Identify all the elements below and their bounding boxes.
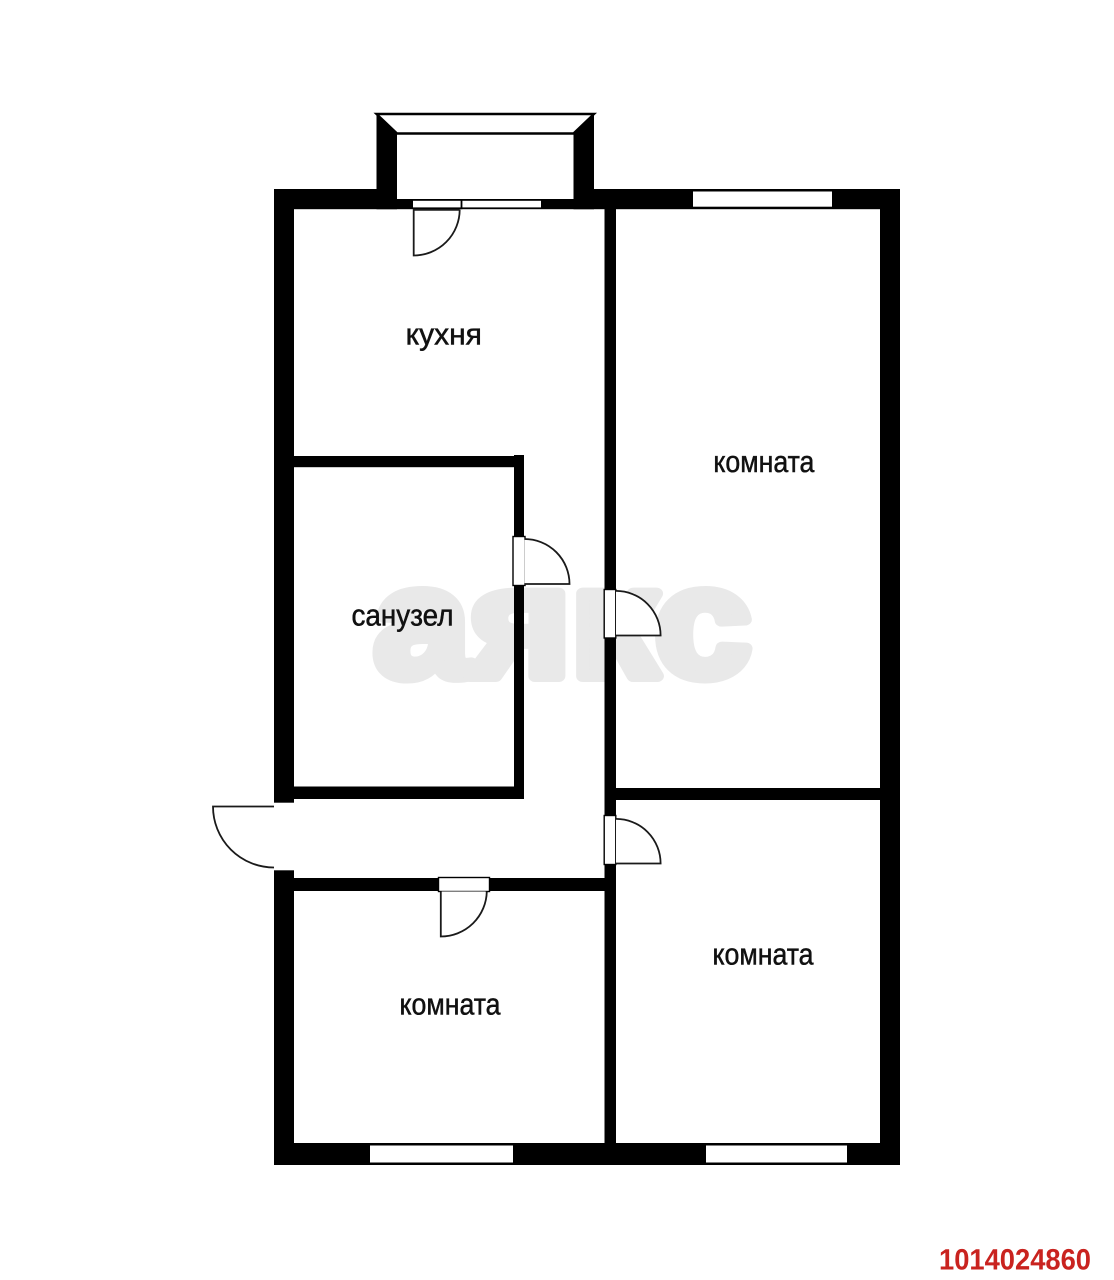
svg-text:комната: комната: [713, 939, 814, 972]
svg-text:санузел: санузел: [352, 600, 454, 633]
svg-text:комната: комната: [400, 988, 501, 1021]
svg-text:кухня: кухня: [406, 319, 482, 352]
svg-text:1014024860: 1014024860: [939, 1244, 1091, 1277]
svg-text:комната: комната: [713, 446, 814, 479]
